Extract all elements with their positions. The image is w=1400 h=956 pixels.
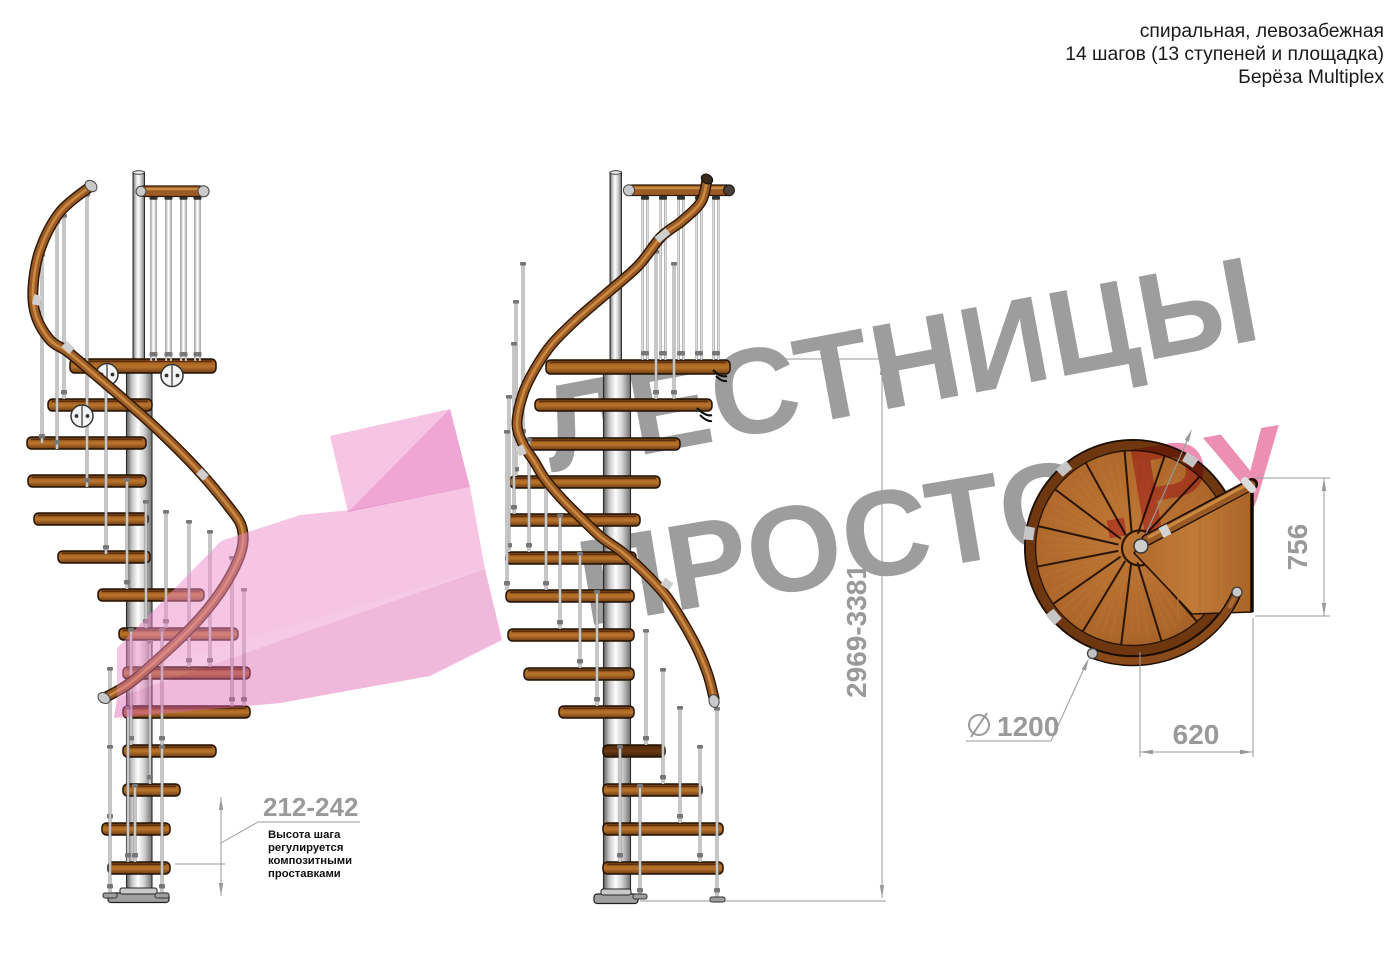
svg-text:спиральная, левозабежная: спиральная, левозабежная xyxy=(1140,21,1384,42)
svg-text:Берёза Multiplex: Берёза Multiplex xyxy=(1238,67,1384,88)
svg-text:Высота шагарегулируетсякомпози: Высота шагарегулируетсякомпозитнымипрост… xyxy=(268,829,352,880)
svg-text:620: 620 xyxy=(1173,719,1220,750)
svg-text:2969-3381: 2969-3381 xyxy=(841,564,872,698)
svg-text:14 шагов (13 ступеней и площад: 14 шагов (13 ступеней и площадка) xyxy=(1065,44,1384,65)
svg-text:1200: 1200 xyxy=(997,711,1059,742)
svg-text:756: 756 xyxy=(1282,524,1313,571)
svg-text:212-242: 212-242 xyxy=(263,792,358,822)
